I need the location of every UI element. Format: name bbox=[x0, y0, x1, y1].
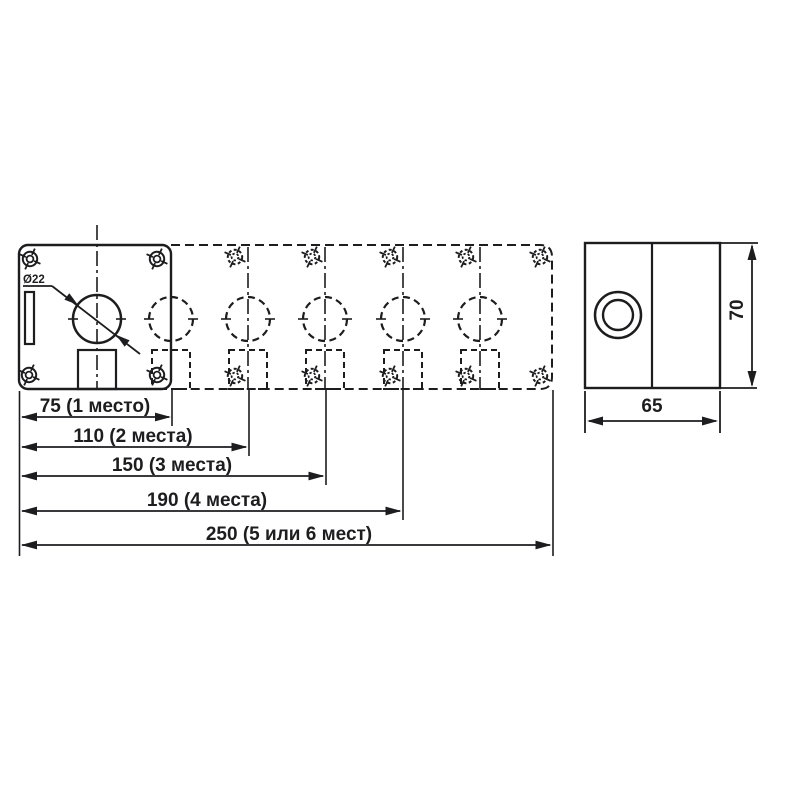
hole-diameter-label: Ø22 bbox=[23, 274, 45, 286]
screw-dashed-icon bbox=[451, 242, 482, 273]
arrowhead-icon bbox=[21, 472, 37, 481]
arrowhead-icon bbox=[155, 413, 171, 422]
dimension-row-110: 110 (2 места) bbox=[21, 426, 248, 451]
arrowhead-icon bbox=[386, 507, 402, 516]
screw-dashed-icon bbox=[375, 242, 406, 273]
arrowhead-icon bbox=[21, 541, 37, 550]
screw-dashed-icon bbox=[297, 361, 328, 392]
cable-slot bbox=[25, 292, 34, 344]
arrowhead-icon bbox=[536, 541, 552, 550]
dimension-label: 70 bbox=[727, 299, 748, 320]
arrowhead-icon bbox=[587, 417, 603, 426]
arrowhead-icon bbox=[309, 472, 325, 481]
arrowhead-icon bbox=[21, 413, 37, 422]
dimension-label: 75 (1 место) bbox=[40, 396, 151, 417]
drawing-canvas: Ø22 75 (1 место) 11 bbox=[0, 0, 799, 800]
arrowhead-icon bbox=[748, 371, 757, 387]
dimension-label: 65 bbox=[641, 396, 663, 417]
side-view: 70 65 bbox=[585, 243, 758, 433]
arrowhead-icon bbox=[64, 293, 78, 305]
dimension-label: 190 (4 места) bbox=[147, 490, 267, 511]
dimension-width-65: 65 bbox=[585, 391, 720, 433]
dimension-label: 250 (5 или 6 мест) bbox=[206, 524, 372, 545]
push-button-inner bbox=[603, 300, 633, 330]
screw-dashed-icon bbox=[525, 361, 556, 392]
dimension-height-70: 70 bbox=[720, 243, 758, 388]
arrowhead-icon bbox=[21, 507, 37, 516]
arrowhead-icon bbox=[232, 443, 248, 452]
dimension-row-150: 150 (3 места) bbox=[21, 455, 325, 480]
dimension-label: 110 (2 места) bbox=[73, 426, 192, 447]
screw-dashed-icon bbox=[525, 242, 556, 273]
screw-dashed-icon bbox=[375, 361, 406, 392]
dimension-row-190: 190 (4 места) bbox=[21, 490, 402, 515]
arrowhead-icon bbox=[748, 244, 757, 260]
dimension-label: 150 (3 места) bbox=[112, 455, 232, 476]
enclosure-extension-outline bbox=[171, 245, 552, 389]
extension-screws bbox=[220, 242, 556, 392]
arrowhead-icon bbox=[702, 417, 718, 426]
screw-dashed-icon bbox=[297, 242, 328, 273]
screw-dashed-icon bbox=[220, 361, 251, 392]
enclosure-drawing: Ø22 75 (1 место) 11 bbox=[0, 0, 799, 800]
hole-diameter-callout: Ø22 bbox=[23, 274, 140, 354]
front-view: Ø22 bbox=[14, 225, 556, 391]
arrowhead-icon bbox=[21, 443, 37, 452]
dimension-row-75: 75 (1 место) bbox=[21, 396, 171, 421]
screw-dashed-icon bbox=[220, 242, 251, 273]
screw-dashed-icon bbox=[451, 361, 482, 392]
dimension-row-250: 250 (5 или 6 мест) bbox=[21, 524, 552, 549]
dimension-rows: 75 (1 место) 110 (2 места) 150 (3 места)… bbox=[20, 389, 554, 556]
